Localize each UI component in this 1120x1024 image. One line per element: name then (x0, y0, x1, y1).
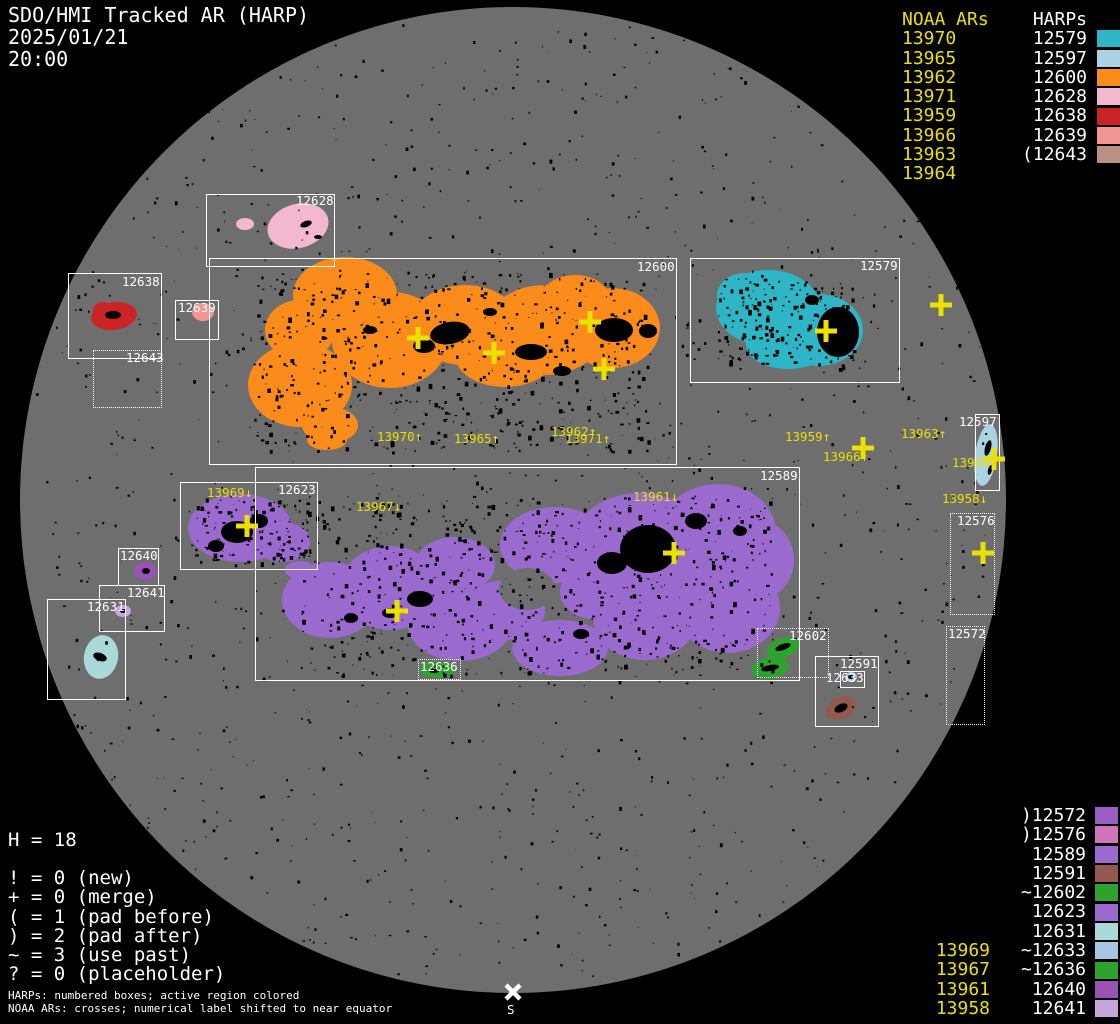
color-swatch (1097, 30, 1120, 47)
legend-br-row-12633: 13969~12633 (932, 941, 1118, 960)
legend-br-row-12576: )12576 (932, 825, 1118, 844)
harp-number: )12576 (990, 825, 1086, 844)
noaa-ar-label-13969: 13969↓ (207, 487, 252, 499)
harp-number: 12600 (990, 68, 1087, 87)
legend-tr-row-12639: 1396612639 (902, 126, 1120, 145)
harp-number: 12579 (990, 29, 1087, 48)
harp-box-12631 (47, 599, 126, 700)
noaa-ar-label-13961: 13961↓ (633, 491, 678, 503)
noaa-ar-number: 13970 (902, 29, 990, 48)
legend-tr-row-13964: 13964 (902, 164, 1120, 183)
legend-tr-row-12579: 1397012579 (902, 29, 1120, 48)
harp-box-12579 (690, 258, 900, 383)
color-swatch (1095, 962, 1118, 979)
harp-box-12576 (950, 513, 995, 615)
legend-br-row-12640: 1396112640 (932, 980, 1118, 999)
harp-box-label-12602: 12602 (789, 630, 827, 642)
harp-box-label-12600: 12600 (637, 261, 675, 273)
harp-number: )12572 (990, 806, 1086, 825)
noaa-ar-number: 13959 (902, 106, 990, 125)
harp-number: ~12633 (990, 941, 1086, 960)
color-swatch (1097, 88, 1120, 105)
noaa-ar-label-13970: 13970↑ (377, 431, 422, 443)
harp-number: 12640 (990, 980, 1086, 999)
footer-note: HARPs: numbered boxes; active region col… (8, 990, 392, 1015)
legend-header-row: NOAA ARs HARPs (902, 10, 1120, 29)
noaa-ar-label-13971: 13971↑ (565, 433, 610, 445)
legend-br-row-12602: ~12602 (932, 883, 1118, 902)
harp-box-label-12628: 12628 (296, 195, 334, 207)
noaa-ar-number: 13966 (902, 126, 990, 145)
solar-harp-map: SDO/HMI Tracked AR (HARP) 2025/01/21 20:… (0, 0, 1120, 1024)
harp-count: H = 18 (8, 829, 77, 851)
color-swatch (1095, 923, 1118, 940)
legend-br-row-12591: 12591 (932, 864, 1118, 883)
harp-number: ~12636 (990, 960, 1086, 979)
noaa-ar-label-13958: 13958↓ (942, 493, 987, 505)
noaa-ar-number: 13961 (932, 980, 990, 999)
harps-header: HARPs (990, 10, 1097, 29)
harp-number: 12641 (990, 999, 1086, 1018)
harp-number: 12597 (990, 49, 1087, 68)
noaa-ar-number: 13964 (902, 164, 990, 183)
harp-box-label-12589: 12589 (760, 470, 798, 482)
noaa-ar-number: 13971 (902, 87, 990, 106)
harp-box-label-12597: 12597 (959, 416, 997, 428)
noaa-ar-number: 13969 (932, 941, 990, 960)
noaa-ar-label-13959: 13959↑ (785, 431, 830, 443)
color-swatch (1097, 108, 1120, 125)
color-swatch (1095, 981, 1118, 998)
color-swatch (1095, 942, 1118, 959)
legend-tr-row-12628: 1397112628 (902, 87, 1120, 106)
color-swatch (1095, 865, 1118, 882)
noaa-ar-number: 13965 (902, 49, 990, 68)
legend-tr-row-12600: 1396212600 (902, 68, 1120, 87)
plot-time: 20:00 (8, 47, 68, 71)
legend-br-row-12636: 13967~12636 (932, 960, 1118, 979)
plot-title-block: SDO/HMI Tracked AR (HARP) 2025/01/21 20:… (8, 4, 309, 70)
plot-date: 2025/01/21 (8, 25, 128, 49)
harp-box-label-12643: 12643 (126, 352, 164, 364)
noaa-ar-number: 13963 (902, 145, 990, 164)
color-swatch (1097, 127, 1120, 144)
noaa-ar-label-13963: 13963↑ (901, 428, 946, 440)
harp-box-label-12636: 12636 (420, 661, 458, 673)
harp-box-label-12641: 12641 (127, 587, 165, 599)
legend-br-row-12631: 12631 (932, 922, 1118, 941)
color-swatch (1095, 904, 1118, 921)
legend-br-row-12623: 12623 (932, 902, 1118, 921)
harp-number: (12643 (990, 145, 1087, 164)
color-swatch (1095, 884, 1118, 901)
noaa-ar-label-13967: 13967↓ (356, 501, 401, 513)
legend-br-row-12572: )12572 (932, 806, 1118, 825)
color-swatch (1097, 69, 1120, 86)
harp-number: ~12602 (990, 883, 1086, 902)
harp-box-label-12572: 12572 (948, 628, 986, 640)
color-swatch (1095, 807, 1118, 824)
harp-box-label-12640: 12640 (120, 550, 158, 562)
harp-box-label-12623: 12623 (278, 484, 316, 496)
noaa-ar-label-13964: 13964↑ (952, 457, 997, 469)
south-pole-label: S (507, 1002, 515, 1017)
harp-number: 12638 (990, 106, 1087, 125)
noaa-ar-label-13966: 13966↑ (823, 451, 868, 463)
harp-number: 12639 (990, 126, 1087, 145)
legend-br-row-12589: 12589 (932, 845, 1118, 864)
noaa-ar-number: 13958 (932, 999, 990, 1018)
color-swatch (1095, 1000, 1118, 1017)
legend-br-row-12641: 1395812641 (932, 999, 1118, 1018)
noaa-ars-header: NOAA ARs (902, 10, 990, 29)
harp-box-label-12633: 12633 (826, 672, 864, 684)
color-swatch (1095, 826, 1118, 843)
harp-box-label-12631: 12631 (87, 601, 125, 613)
harp-box-label-12576: 12576 (957, 515, 995, 527)
color-swatch (1097, 50, 1120, 67)
harp-box-label-12579: 12579 (860, 260, 898, 272)
harp-number: 12631 (990, 922, 1086, 941)
legend-bottom-right: )12572)125761258912591~12602126231263113… (932, 806, 1118, 1018)
flag-legend: ! = 0 (new) + = 0 (merge) ( = 1 (pad bef… (8, 869, 225, 985)
harp-box-label-12639: 12639 (178, 302, 216, 314)
color-swatch (1095, 846, 1118, 863)
noaa-ar-number: 13967 (932, 960, 990, 979)
legend-tr-row-12597: 1396512597 (902, 49, 1120, 68)
harp-box-label-12591: 12591 (840, 658, 878, 670)
legend-top-right: NOAA ARs HARPs 1397012579139651259713962… (902, 10, 1120, 184)
harp-number: 12623 (990, 902, 1086, 921)
noaa-ar-label-13965: 13965↑ (454, 433, 499, 445)
harp-box-12589 (255, 467, 800, 681)
harp-number: 12628 (990, 87, 1087, 106)
legend-tr-row-12638: 1395912638 (902, 106, 1120, 125)
noaa-ar-number: 13962 (902, 68, 990, 87)
harp-box-label-12638: 12638 (122, 276, 160, 288)
plot-title: SDO/HMI Tracked AR (HARP) (8, 3, 309, 27)
legend-tr-row-12643: 13963(12643 (902, 145, 1120, 164)
color-swatch (1097, 146, 1120, 163)
harp-number: 12589 (990, 845, 1086, 864)
harp-number: 12591 (990, 864, 1086, 883)
